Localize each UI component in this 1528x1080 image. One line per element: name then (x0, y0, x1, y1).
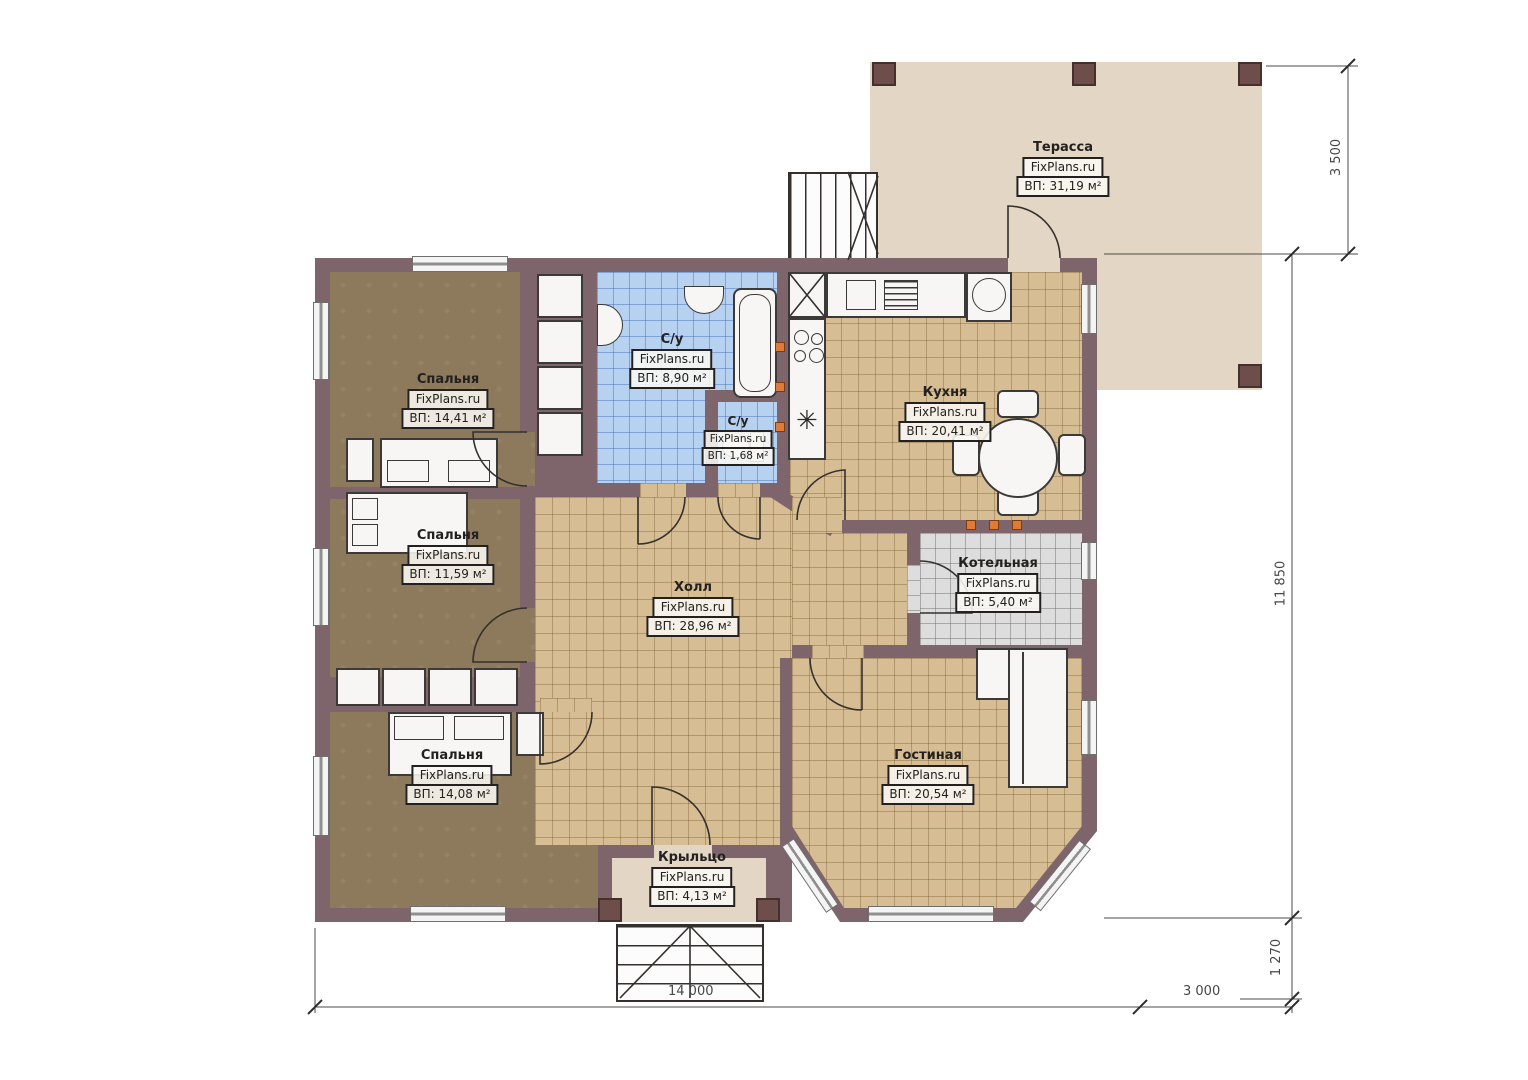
pillow (387, 460, 429, 482)
terrace-post (1238, 364, 1262, 388)
room-hall (535, 497, 792, 845)
closet (474, 668, 518, 706)
room-name: Гостиная (894, 748, 962, 763)
pillow (352, 524, 378, 546)
door-opening (812, 645, 864, 658)
brand-badge: FixPlans.ru (412, 765, 493, 786)
brand-badge: FixPlans.ru (408, 545, 489, 566)
stairs (788, 172, 878, 260)
window (1081, 542, 1097, 580)
room-name: Холл (674, 580, 712, 595)
room-label-terrace: Терасса FixPlans.ru ВП: 31,19 м² (1016, 140, 1109, 197)
closet (537, 274, 583, 318)
window (313, 302, 329, 380)
room-area: ВП: 8,90 м² (629, 368, 715, 389)
pillow (454, 716, 504, 740)
closet (428, 668, 472, 706)
door-opening (520, 608, 535, 662)
sofa (1008, 648, 1068, 788)
closet (336, 668, 380, 706)
room-name: Спальня (421, 748, 483, 763)
room-label-bedroom-1: Спальня FixPlans.ru ВП: 14,41 м² (401, 372, 494, 429)
terrace-post (1072, 62, 1096, 86)
room-name: С/у (661, 332, 684, 347)
closet (537, 320, 583, 364)
brand-badge: FixPlans.ru (1023, 157, 1104, 178)
room-area: ВП: 20,41 м² (898, 421, 991, 442)
terrace-post (872, 62, 896, 86)
brand-badge: FixPlans.ru (632, 349, 713, 370)
window (1081, 700, 1097, 755)
room-label-living: Гостиная FixPlans.ru ВП: 20,54 м² (881, 748, 974, 805)
fridge-icon: ✳ (796, 408, 818, 434)
nightstand (346, 438, 374, 482)
bathtub-inner (739, 294, 771, 392)
room-name: Спальня (417, 372, 479, 387)
room-area: ВП: 28,96 м² (646, 616, 739, 637)
door-opening (907, 565, 920, 613)
room-area: ВП: 20,54 м² (881, 784, 974, 805)
room-area: ВП: 14,41 м² (401, 408, 494, 429)
window (410, 906, 506, 922)
vent-marker (775, 342, 785, 352)
brand-badge: FixPlans.ru (652, 867, 733, 888)
room-label-wc: С/у FixPlans.ru ВП: 1,68 м² (702, 414, 775, 466)
room-label-bedroom-2: Спальня FixPlans.ru ВП: 11,59 м² (401, 528, 494, 585)
window (313, 548, 329, 626)
room-area: ВП: 31,19 м² (1016, 176, 1109, 197)
room-label-porch: Крыльцо FixPlans.ru ВП: 4,13 м² (649, 850, 735, 907)
dimension-terrace-depth: 3 500 (1329, 139, 1344, 176)
room-label-boiler: Котельная FixPlans.ru ВП: 5,40 м² (955, 556, 1041, 613)
closet (537, 412, 583, 456)
room-name: Терасса (1033, 140, 1093, 155)
vent-marker (966, 520, 976, 530)
room-name: Спальня (417, 528, 479, 543)
closet (382, 668, 426, 706)
room-name: Кухня (923, 385, 968, 400)
vent-marker (775, 382, 785, 392)
oven (846, 280, 876, 310)
brand-badge: FixPlans.ru (408, 389, 489, 410)
dimension-house-depth: 11 850 (1273, 561, 1288, 607)
room-name: Котельная (958, 556, 1038, 571)
floor-plan: ✳ (0, 0, 1528, 1080)
wall (780, 658, 792, 845)
passage-opening (792, 497, 842, 533)
vent-marker (989, 520, 999, 530)
brand-badge: FixPlans.ru (958, 573, 1039, 594)
door-opening (718, 483, 760, 497)
room-label-hall: Холл FixPlans.ru ВП: 28,96 м² (646, 580, 739, 637)
window-bay-center (868, 906, 994, 922)
room-label-kitchen: Кухня FixPlans.ru ВП: 20,41 м² (898, 385, 991, 442)
brand-badge: FixPlans.ru (905, 402, 986, 423)
pillow (448, 460, 490, 482)
window (313, 756, 329, 836)
room-name: Крыльцо (658, 850, 726, 865)
round-sink (972, 278, 1006, 312)
window (412, 256, 508, 272)
stove-burner (794, 330, 809, 345)
door-opening-terrace (1008, 258, 1060, 272)
sofa-seam (1022, 652, 1024, 784)
room-name: С/у (727, 414, 748, 428)
chair (997, 390, 1039, 418)
kitchen-sink-unit (788, 272, 826, 318)
brand-badge: FixPlans.ru (653, 597, 734, 618)
dimension-house-width: 14 000 (668, 984, 714, 999)
room-area: ВП: 4,13 м² (649, 886, 735, 907)
stove-burner (794, 350, 806, 362)
pillow (352, 498, 378, 520)
dimension-terrace-width: 3 000 (1183, 984, 1220, 999)
room-area: ВП: 11,59 м² (401, 564, 494, 585)
door-opening (540, 698, 592, 712)
stove-burner (811, 333, 823, 345)
dimension-porch-depth: 1 270 (1269, 939, 1284, 976)
nightstand (516, 712, 544, 756)
stove-burner (809, 348, 824, 363)
vent-marker (775, 422, 785, 432)
pillow (394, 716, 444, 740)
hall-corridor (792, 533, 907, 645)
sofa-arm (976, 648, 1010, 700)
porch-post (756, 898, 780, 922)
room-label-bedroom-3: Спальня FixPlans.ru ВП: 14,08 м² (405, 748, 498, 805)
vent-marker (1012, 520, 1022, 530)
chair (1058, 434, 1086, 476)
room-label-bathroom: С/у FixPlans.ru ВП: 8,90 м² (629, 332, 715, 389)
wall (583, 272, 597, 497)
window (1081, 284, 1097, 334)
room-area: ВП: 5,40 м² (955, 592, 1041, 613)
door-opening (520, 432, 535, 486)
vent-grill (884, 280, 918, 310)
room-area: ВП: 1,68 м² (702, 447, 775, 466)
terrace-post (1238, 62, 1262, 86)
closet (537, 366, 583, 410)
room-area: ВП: 14,08 м² (405, 784, 498, 805)
porch-post (598, 898, 622, 922)
brand-badge: FixPlans.ru (888, 765, 969, 786)
door-opening (640, 483, 686, 497)
